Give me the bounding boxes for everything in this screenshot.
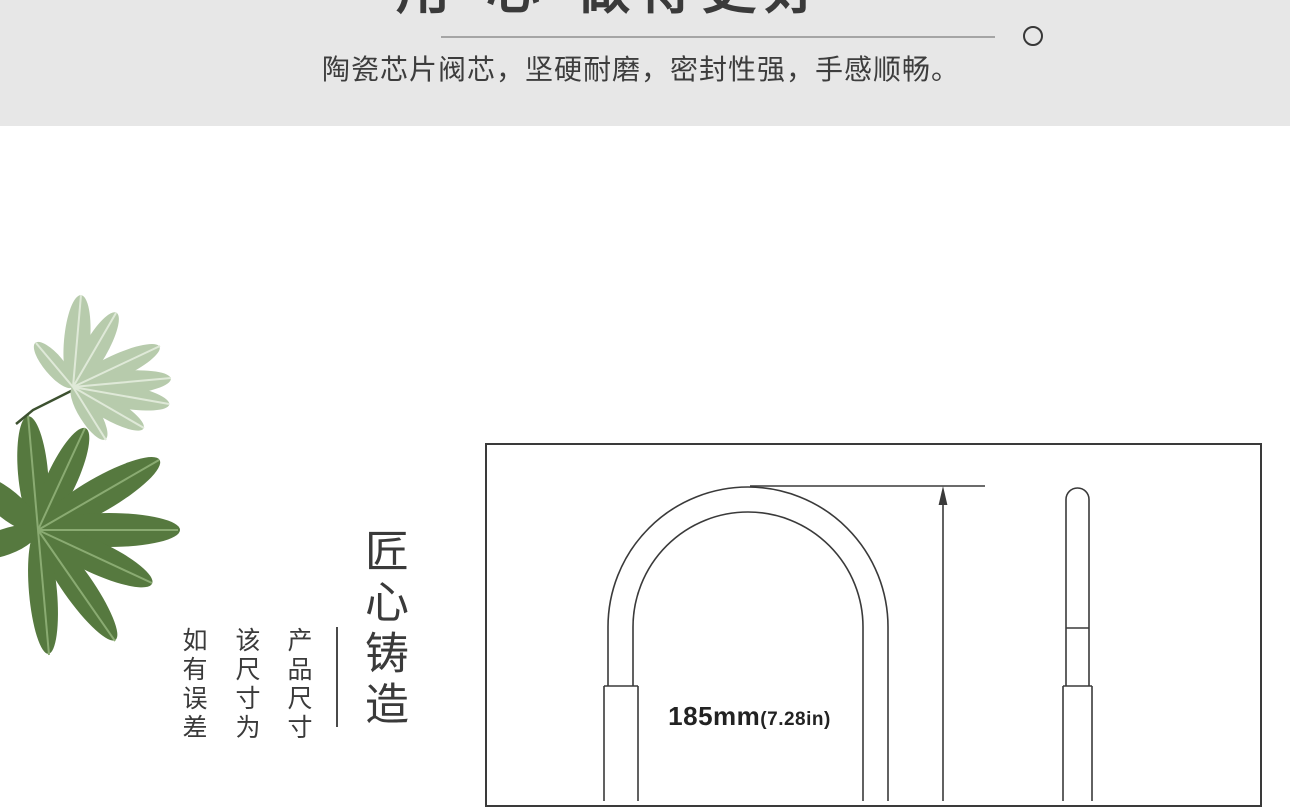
dark-leaf [0,415,180,655]
faucet-line-drawing [487,445,1260,801]
top-banner: 用·心·做得更好 陶瓷芯片阀芯，坚硬耐磨，密封性强，手感顺畅。 [0,0,1290,126]
banner-title: 用·心·做得更好 [396,0,828,17]
note-tolerance: 如有误差 [179,627,206,767]
pale-leaf [28,294,172,445]
banner-subtitle: 陶瓷芯片阀芯，坚硬耐磨，密封性强，手感顺畅。 [322,53,960,86]
dimension-label: 185mm(7.28in) [642,701,857,732]
dimension-drawing: 185mm(7.28in) [485,443,1262,807]
note-product-size: 产品尺寸 [284,627,311,767]
circle-ornament-icon [1023,26,1043,46]
leaf-image [0,288,203,688]
divider-line [441,36,995,38]
dimension-mm: 185mm [668,701,760,731]
dimension-arrow-icon [939,486,948,505]
vertical-divider [336,627,338,727]
vertical-title: 匠心铸造 [358,528,406,788]
product-detail-page: 用·心·做得更好 陶瓷芯片阀芯，坚硬耐磨，密封性强，手感顺畅。 [0,0,1290,720]
note-measurement: 该尺寸为 [232,627,259,767]
